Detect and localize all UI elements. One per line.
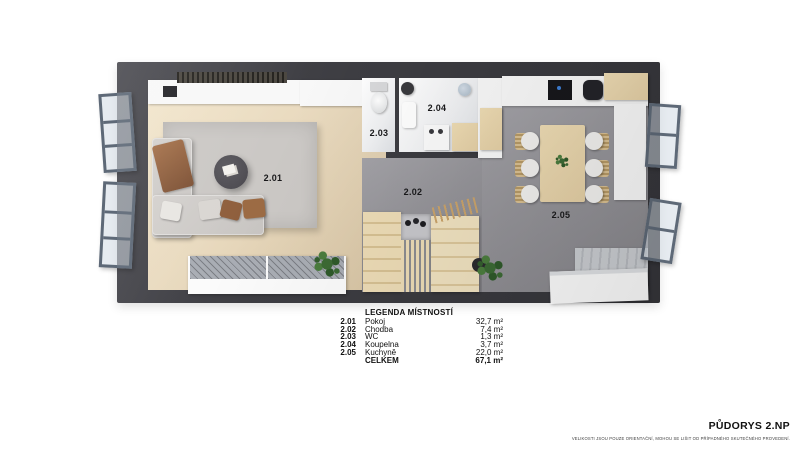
shoes: [420, 221, 426, 227]
legend-title: LEGENDA MÍSTNOSTÍ: [335, 309, 503, 317]
room-number: 2.05: [335, 349, 356, 357]
washing-machine: [424, 125, 449, 150]
terrace-bench: [549, 268, 648, 303]
window-right-top: [645, 103, 681, 169]
dining-chair: [585, 132, 603, 150]
spacer: [335, 357, 356, 365]
washbasin: [401, 82, 414, 95]
sofa-pillow: [160, 200, 183, 221]
sink-unit: [402, 102, 416, 128]
kitchen-side-cabinet: [614, 104, 646, 200]
toilet: [371, 92, 387, 113]
cooktop-light: [557, 86, 561, 90]
shower-head: [458, 83, 471, 96]
cooktop: [548, 80, 572, 100]
room-label-corridor: 2.02: [393, 187, 433, 197]
plan-title: PŮDORYS 2.NP: [709, 420, 790, 432]
stairs-right-flight: [431, 216, 479, 292]
legend-row: 2.03 WC 1,3 m²: [335, 333, 503, 341]
bench-cushion: [268, 256, 344, 279]
toilet-tank: [370, 82, 387, 91]
room-label-bath: 2.04: [417, 103, 457, 113]
bench-cushion: [190, 256, 266, 279]
sofa-pillow: [242, 198, 266, 219]
shoes: [405, 220, 411, 226]
room-label-wc: 2.03: [359, 128, 399, 138]
wardrobe-rail: [177, 72, 287, 83]
washer-knob: [429, 129, 434, 134]
fridge-cabinet: [604, 73, 648, 100]
stairs-left-flight: [363, 212, 401, 292]
stairs-landing: [401, 240, 431, 292]
room-label-living: 2.01: [253, 173, 293, 183]
bar-chair: [583, 80, 603, 100]
dining-chair: [585, 159, 603, 177]
sofa-pillow: [198, 199, 222, 221]
potted-plant: [321, 258, 332, 269]
legend-total-row: CELKEM 67,1 m²: [335, 357, 503, 365]
room-legend: LEGENDA MÍSTNOSTÍ 2.01 Pokoj 32,7 m² 2.0…: [335, 309, 503, 364]
dining-chair: [521, 132, 539, 150]
plan-disclaimer: VELIKOSTI JSOU POUZE ORIENTAČNÍ, MOHOU S…: [572, 436, 790, 441]
legend-row: 2.01 Pokoj 32,7 m²: [335, 318, 503, 326]
window-left-top: [98, 92, 136, 173]
floorplan-render: 2.01 2.03 2.04 2.02: [117, 62, 660, 303]
dining-chair: [585, 185, 603, 203]
dining-chair: [521, 159, 539, 177]
total-area: 67,1 m²: [475, 357, 503, 365]
kitchen-tall-cabinet: [480, 108, 502, 150]
legend-row: 2.02 Chodba 7,4 m²: [335, 326, 503, 334]
shoes: [413, 218, 419, 224]
tv-unit: [163, 86, 177, 97]
room-label-kitchen: 2.05: [541, 210, 581, 220]
bath-cabinet: [452, 123, 478, 151]
washer-knob: [438, 129, 443, 134]
dining-chair: [521, 185, 539, 203]
potted-plant: [484, 262, 495, 273]
table-plant: [559, 158, 565, 164]
total-label: CELKEM: [365, 357, 399, 365]
window-left-bottom: [99, 181, 136, 269]
floorplan-page: 2.01 2.03 2.04 2.02: [0, 0, 800, 450]
